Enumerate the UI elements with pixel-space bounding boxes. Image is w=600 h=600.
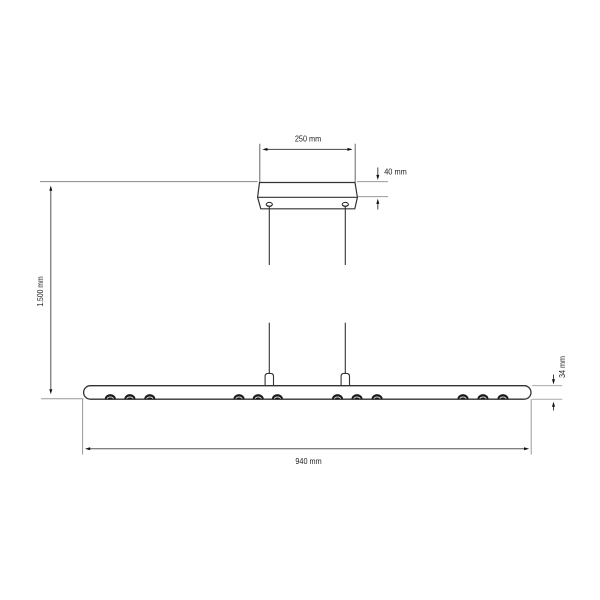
svg-text:250 mm: 250 mm bbox=[295, 134, 321, 144]
svg-text:34 mm: 34 mm bbox=[557, 356, 567, 378]
svg-text:1.500 mm: 1.500 mm bbox=[35, 276, 45, 306]
svg-text:40 mm: 40 mm bbox=[384, 167, 407, 177]
svg-text:940 mm: 940 mm bbox=[295, 456, 321, 466]
